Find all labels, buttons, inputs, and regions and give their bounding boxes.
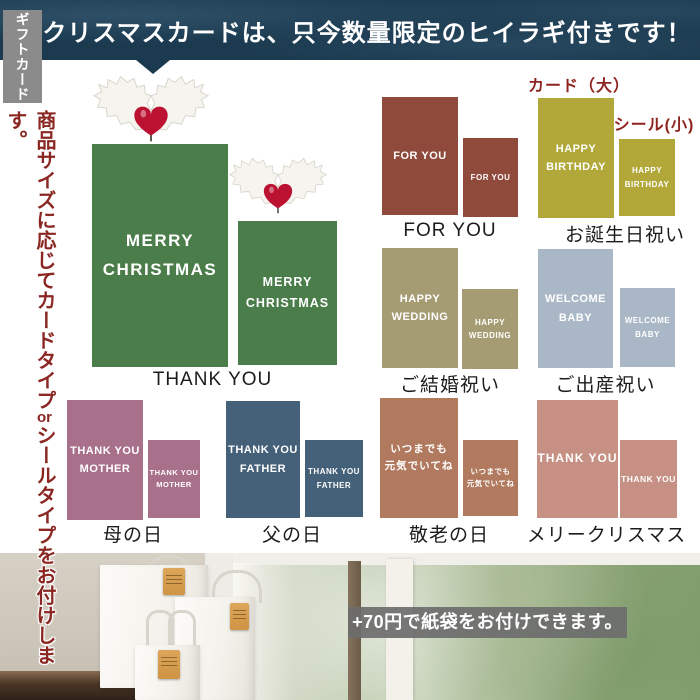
gift-card-tab-label: ギフトカード	[13, 12, 33, 102]
card-text: THANK YOU	[70, 442, 140, 460]
bag-tag	[163, 568, 185, 595]
card-father-small: THANK YOU FATHER	[305, 440, 363, 517]
card-text: BABY	[559, 309, 592, 327]
label-merry: メリークリスマス	[524, 520, 689, 547]
card-foryou-large: FOR YOU	[382, 97, 458, 215]
card-birthday-small: HAPPY BIRTHDAY	[619, 139, 675, 216]
card-text: MOTHER	[80, 460, 131, 478]
card-merry-small: THANK YOU	[620, 440, 677, 518]
annotation-seal-small: シール(小)	[608, 111, 700, 135]
card-text: いつまでも	[390, 441, 448, 458]
card-text: MERRY	[126, 227, 194, 255]
card-text: THANK YOU	[150, 467, 199, 479]
card-text: FOR YOU	[471, 171, 511, 184]
card-foryou-small: FOR YOU	[463, 138, 518, 217]
card-text: THANK YOU	[228, 441, 298, 459]
card-text: 元気でいてね	[467, 478, 515, 490]
note-text-or: or	[36, 410, 53, 425]
card-baby-small: WELCOME BABY	[620, 288, 675, 367]
card-text: BABY	[635, 328, 660, 341]
holly-decoration-icon	[92, 72, 210, 144]
sidebar-note-column-right: 商品サイズに応じてカードタイプorシールタイプをお付けします。	[0, 110, 59, 698]
note-text: 商品サイズに応じてカードタイプ	[33, 110, 55, 410]
card-text: BIRTHDAY	[625, 178, 670, 191]
card-text: いつまでも	[471, 466, 511, 478]
card-wedding-large: HAPPY WEDDING	[382, 248, 458, 368]
card-text: 元気でいてね	[385, 458, 454, 475]
card-keirou-small: いつまでも 元気でいてね	[463, 440, 518, 516]
window-sill	[233, 553, 700, 565]
card-text: HAPPY	[475, 316, 505, 329]
card-text: HAPPY	[632, 164, 662, 177]
banner-title: クリスマスカードは、只今数量限定のヒイラギ付きです！	[42, 13, 691, 48]
label-birthday: お誕生日祝い	[545, 220, 700, 247]
promo-image: クリスマスカードは、只今数量限定のヒイラギ付きです！ ギフトカード 商品サイズに…	[0, 0, 700, 700]
label-keirou: 敬老の日	[374, 520, 524, 547]
annotation-card-large: カード（大）	[528, 72, 628, 96]
card-text: WEDDING	[469, 329, 511, 342]
paper-bag-photo: +70円で紙袋をお付けできます。	[0, 553, 700, 700]
label-mother: 母の日	[58, 520, 208, 547]
card-text: HAPPY	[556, 140, 596, 158]
bag-tag	[230, 603, 249, 630]
card-mother-small: THANK YOU MOTHER	[148, 440, 200, 518]
top-banner: クリスマスカードは、只今数量限定のヒイラギ付きです！	[0, 0, 700, 60]
sidebar-note: 商品サイズに応じてカードタイプorシールタイプをお付けします。 商品の外側か内側…	[1, 110, 59, 698]
card-wedding-small: HAPPY WEDDING	[462, 289, 518, 369]
card-text: CHRISTMAS	[103, 256, 218, 284]
card-text: BIRTHDAY	[546, 158, 606, 176]
card-birthday-large: HAPPY BIRTHDAY	[538, 98, 614, 218]
card-merry-large: THANK YOU	[537, 400, 618, 518]
bag-tag	[158, 650, 180, 679]
paper-bag-caption: +70円で紙袋をお付けできます。	[348, 607, 627, 638]
card-text: WELCOME	[545, 290, 606, 308]
label-father: 父の日	[217, 520, 367, 547]
card-text: MOTHER	[156, 479, 192, 491]
holly-decoration-icon	[228, 152, 328, 218]
card-text: FATHER	[317, 479, 351, 492]
card-text: MERRY	[263, 272, 313, 293]
label-foryou: FOR YOU	[375, 220, 525, 242]
card-text: WELCOME	[625, 314, 670, 327]
card-text: FOR YOU	[393, 147, 446, 165]
card-christmas-large: MERRY CHRISTMAS	[92, 144, 228, 367]
label-baby: ご出産祝い	[528, 370, 683, 397]
card-baby-large: WELCOME BABY	[538, 249, 613, 368]
card-keirou-large: いつまでも 元気でいてね	[380, 398, 458, 518]
card-father-large: THANK YOU FATHER	[226, 401, 300, 518]
label-wedding: ご結婚祝い	[375, 370, 525, 397]
card-text: THANK YOU	[308, 465, 360, 478]
card-mother-large: THANK YOU MOTHER	[67, 400, 143, 520]
card-text: WEDDING	[392, 308, 449, 326]
gift-card-tab: ギフトカード	[3, 10, 42, 103]
label-christmas: THANK YOU	[55, 369, 370, 391]
card-text: FATHER	[240, 460, 286, 478]
card-christmas-small: MERRY CHRISTMAS	[238, 221, 337, 365]
card-text: CHRISTMAS	[246, 293, 329, 314]
card-text: HAPPY	[400, 290, 440, 308]
card-text: THANK YOU	[537, 449, 617, 469]
card-text: THANK YOU	[621, 472, 676, 486]
